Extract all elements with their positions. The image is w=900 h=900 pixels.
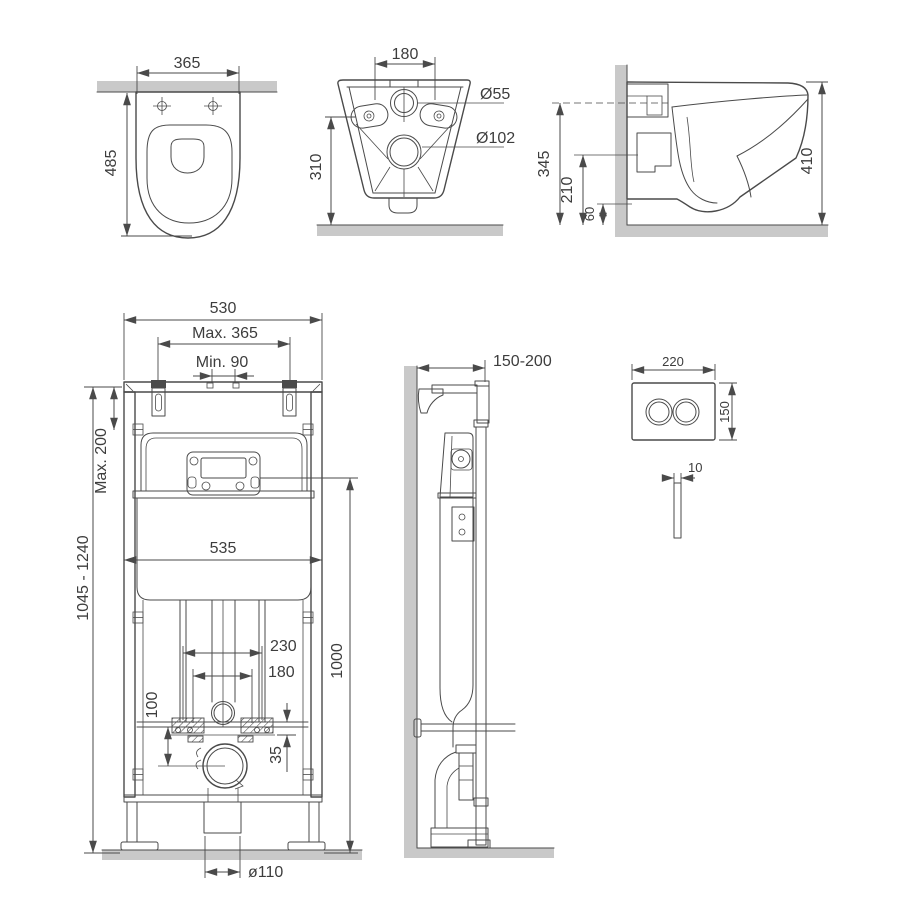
dim-label: 180 xyxy=(268,664,295,681)
dim-label: 100 xyxy=(144,692,161,719)
dim-label: Ø55 xyxy=(480,86,510,103)
outlet-connection xyxy=(637,133,671,172)
dim-label: 150 xyxy=(717,401,732,423)
dim-label: 535 xyxy=(210,540,237,557)
wall-surface xyxy=(615,65,627,237)
dim-wall-distance: 150-200 xyxy=(417,353,552,382)
floor-surface xyxy=(404,848,554,858)
floor-surface xyxy=(102,850,362,860)
drain-hole xyxy=(387,135,421,169)
drain-elbow xyxy=(431,745,488,847)
post-upper xyxy=(477,386,489,423)
frame-left-leg xyxy=(127,802,137,842)
wall-surface xyxy=(97,81,277,92)
floor-surface xyxy=(615,225,828,237)
drawing-page: 365 485 xyxy=(0,0,900,900)
dim-label: 365 xyxy=(174,55,201,72)
dim-plate-height: 150 xyxy=(717,383,737,440)
dim-label: 1045 - 1240 xyxy=(75,535,92,621)
dim-label: Min. 90 xyxy=(196,354,249,371)
flush-button-large xyxy=(673,399,699,425)
floor-outlet xyxy=(204,802,241,833)
dim-top-adjust: Max. 200 xyxy=(93,387,114,494)
dim-label: 210 xyxy=(559,177,576,204)
dim-back-height: 310 xyxy=(308,117,356,225)
frame-right-leg xyxy=(309,802,319,842)
dim-bracket-offset: 35 xyxy=(268,703,296,772)
toilet-back-view: 180 Ø55 Ø102 310 xyxy=(308,46,515,236)
flush-plate-profile xyxy=(674,483,681,538)
dim-label: 35 xyxy=(268,746,285,764)
dim-label: 60 xyxy=(582,207,597,221)
floor-surface xyxy=(317,225,503,236)
dim-label: 310 xyxy=(308,154,325,181)
dim-label: 10 xyxy=(688,460,702,475)
dim-bottom-clearance: 60 xyxy=(582,204,603,225)
mounting-mark-left xyxy=(153,97,171,115)
dim-label: Max. 200 xyxy=(93,428,110,494)
dim-outlet-height: 210 xyxy=(559,155,583,225)
dim-cistern-width: 535 xyxy=(124,540,322,560)
dim-label: Ø102 xyxy=(476,130,515,147)
dim-label: 150-200 xyxy=(493,353,552,370)
stud-bracket-right xyxy=(282,380,297,416)
frame-side-view: 150-200 xyxy=(404,353,554,858)
flush-button-small xyxy=(646,399,672,425)
dim-plate-thickness: 10 xyxy=(662,460,702,484)
frame-post xyxy=(476,427,486,845)
frame-bottom-rail xyxy=(124,795,322,802)
dim-label: 530 xyxy=(210,300,237,317)
dim-label: Max. 365 xyxy=(192,325,258,342)
dim-stud-max: Max. 365 xyxy=(158,325,290,381)
frame-right-rail xyxy=(311,392,322,797)
dim-label: ø110 xyxy=(248,864,283,881)
stud-bracket-left xyxy=(151,380,166,416)
frame-left-rail xyxy=(124,392,135,797)
dim-plate-width: 220 xyxy=(632,354,715,380)
cistern-side xyxy=(438,433,476,747)
toilet-bowl-outline xyxy=(136,92,240,238)
toilet-top-view: 365 485 xyxy=(97,55,277,238)
cistern xyxy=(133,433,314,600)
flush-opening xyxy=(171,139,204,173)
technical-drawing: 365 485 xyxy=(0,0,900,900)
dim-label: 230 xyxy=(270,638,297,655)
dim-label: 180 xyxy=(392,46,419,63)
dim-wall-height: 345 xyxy=(536,103,560,225)
drain-socket xyxy=(196,744,247,802)
fixing-slot-right xyxy=(419,102,459,130)
frame-right-foot xyxy=(288,842,325,850)
label-outlet-diameter: Ø102 xyxy=(422,130,515,147)
frame-front-view: 530 Max. 365 Min. 90 Max. 200 1045 - 124… xyxy=(75,300,362,881)
mounting-mark-right xyxy=(204,97,222,115)
label-inlet-diameter: Ø55 xyxy=(418,86,510,103)
toilet-side-view: 345 210 60 410 xyxy=(536,65,828,237)
flush-plate-view: 220 150 10 xyxy=(632,354,737,538)
wall-surface xyxy=(404,366,417,858)
dim-label: 410 xyxy=(799,148,816,175)
dim-label: 220 xyxy=(662,354,684,369)
dim-bolt-spacing: 180 xyxy=(375,46,435,100)
dim-stud-min: Min. 90 xyxy=(193,354,254,383)
dim-label: 345 xyxy=(536,151,553,178)
frame-left-foot xyxy=(121,842,158,850)
outlet-spigot xyxy=(389,198,417,213)
dim-label: 485 xyxy=(103,150,120,177)
wall-anchor-rod xyxy=(414,719,515,737)
toilet-seat-outline xyxy=(147,125,232,223)
dim-pipe-spacing: 180 xyxy=(193,664,295,723)
flush-valve-access xyxy=(187,452,260,495)
dim-label: 1000 xyxy=(329,643,346,679)
